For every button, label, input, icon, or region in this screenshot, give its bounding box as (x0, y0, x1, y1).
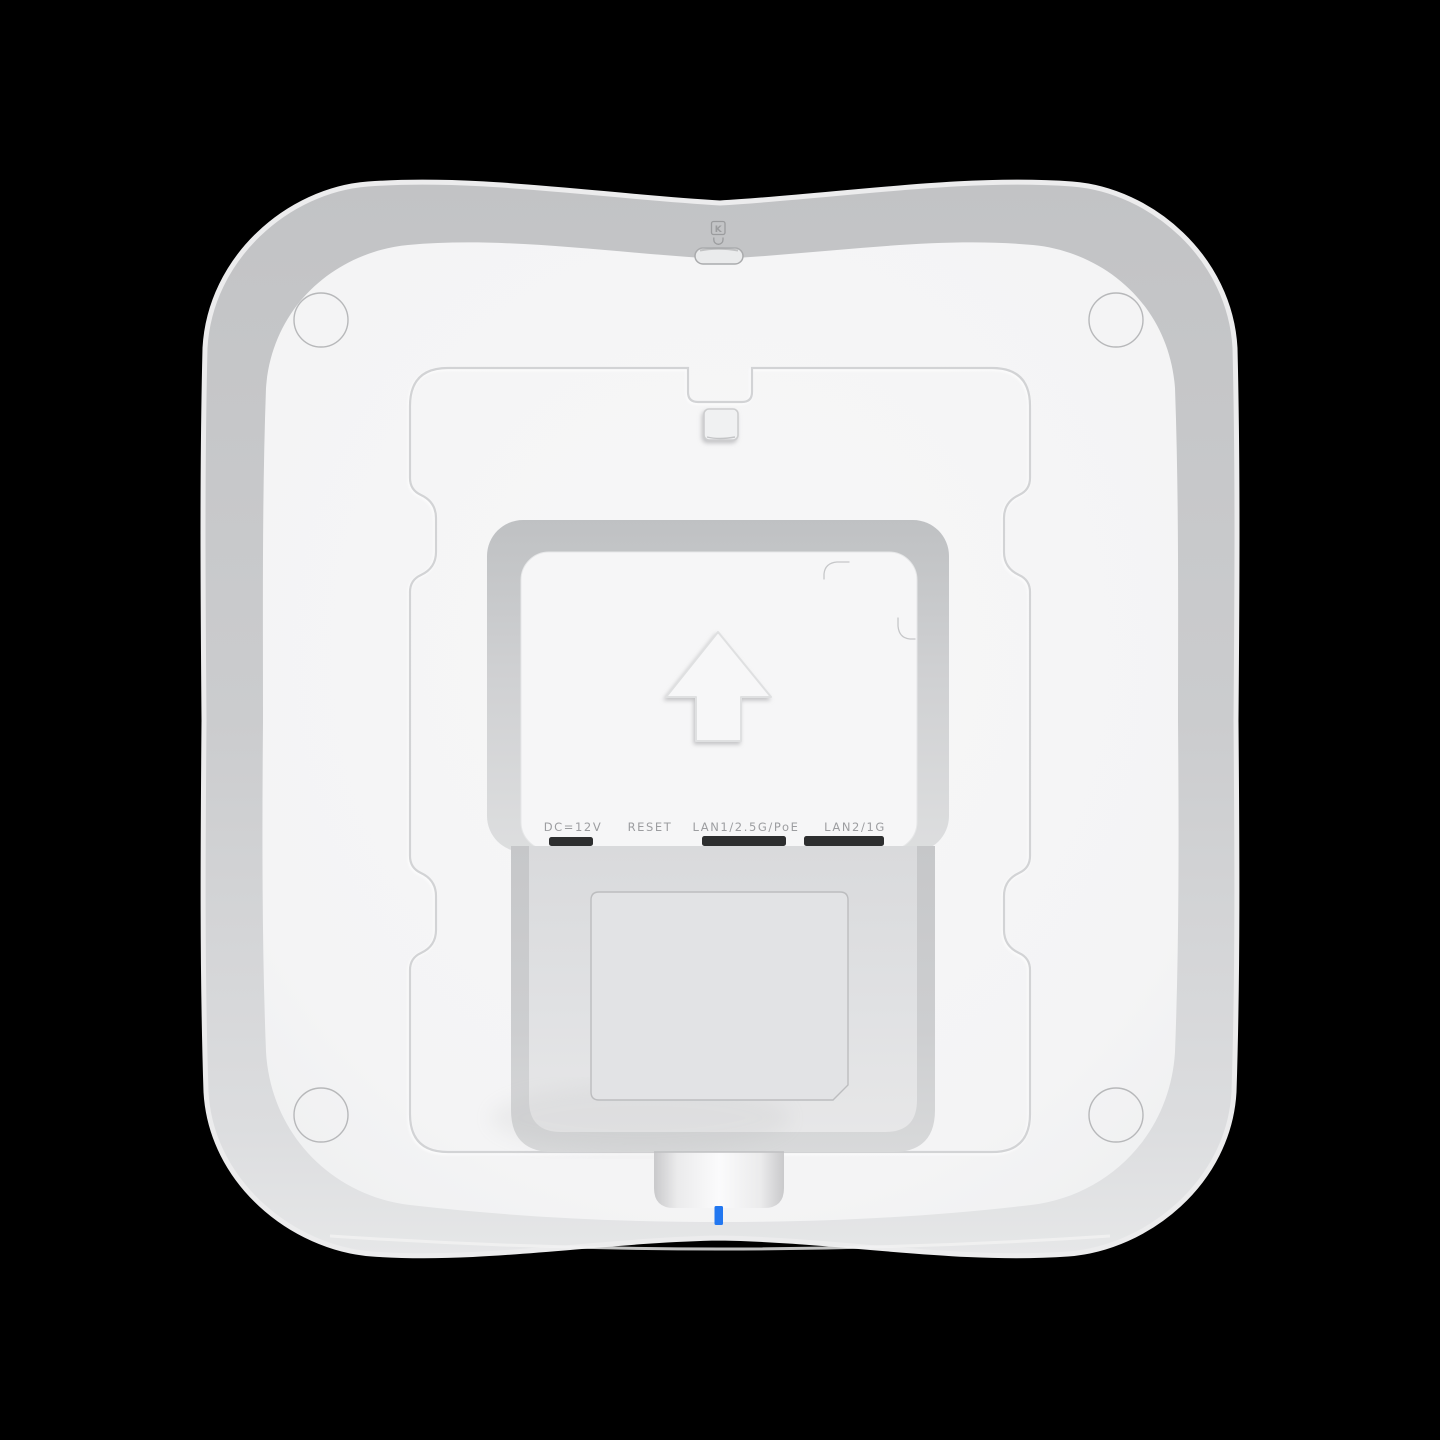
release-latch (704, 409, 738, 440)
lan2-port (804, 836, 884, 846)
port-label-lan1: LAN1/2.5G/PoE (692, 820, 799, 834)
label-patch-outline (591, 892, 848, 1100)
kensington-icon-letter: K (715, 225, 723, 235)
access-point-rear-photo: K DC=12V RESET LAN1/2.5G/PoE LAN2/1G (0, 0, 1440, 1440)
dc-power-port (549, 837, 593, 846)
port-label-lan2: LAN2/1G (824, 820, 886, 834)
port-label-power: DC=12V (544, 820, 603, 834)
bottom-cable-tab (654, 1152, 784, 1208)
lower-cavity (490, 846, 935, 1152)
port-label-reset: RESET (628, 820, 673, 834)
upper-recess: DC=12V RESET LAN1/2.5G/PoE LAN2/1G (487, 520, 949, 852)
status-led (715, 1206, 724, 1225)
lan1-port (702, 836, 786, 846)
port-labels: DC=12V RESET LAN1/2.5G/PoE LAN2/1G (544, 820, 886, 834)
photo-stage: K DC=12V RESET LAN1/2.5G/PoE LAN2/1G (0, 0, 1440, 1440)
